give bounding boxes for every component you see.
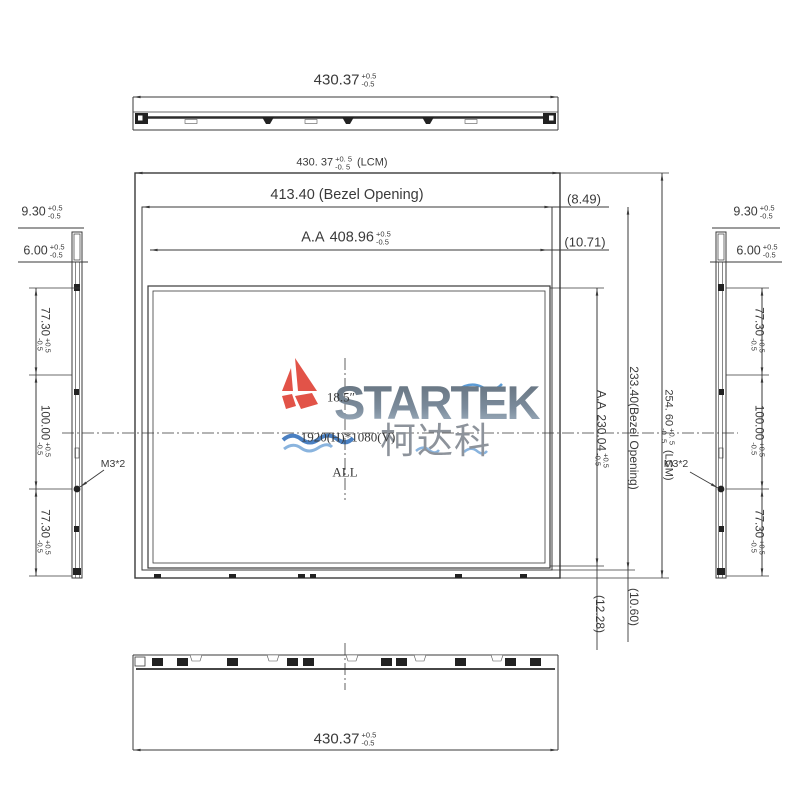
dim-left-thickness-panel: 6.00 +0.5-0.5 [23,244,64,259]
drawing-linework: STARTEK 柯达科 [0,0,800,800]
dim-bezel-height: 233.40(Bezel Opening) [628,366,640,489]
panel-resolution-label: 1920(H)*1080(V) [301,431,396,444]
panel-grade-label: ALL [332,466,357,479]
dim-right-seg-mid: 100.00 +0.5-0.5 [751,405,766,457]
dim-left-seg-mid: 100.00 +0.5-0.5 [37,405,52,457]
dim-right-seg-top: 77.30 +0.5-0.5 [751,307,766,353]
dim-aa-width: A.A 408.96 +0.5-0.5 [301,231,391,246]
dim-bezel-width: 413.40 (Bezel Opening) [270,188,423,203]
ref-dim-aa-right: (10.71) [564,236,605,249]
startek-wordmarks: STARTEK 柯达科 [334,376,541,462]
ref-dim-bezel-right: (8.49) [567,193,601,206]
dim-value: 430.37 [314,73,360,88]
note-right-screw: M3*2 [664,459,689,470]
top-profile-view [133,97,558,130]
dim-aa-height: A.A 230.04 +0.5-0.5 [595,390,610,468]
dim-right-thickness-panel: 6.00 +0.5-0.5 [736,244,777,259]
dim-top-view-width: 430.37 +0.5-0.5 [314,73,377,88]
ref-dim-bezel-bottom: (10.60) [628,588,640,626]
engineering-drawing-page: STARTEK 柯达科 430.37 +0.5-0.5 430. 37 +0. … [0,0,800,800]
dim-right-thickness-total: 9.30 +0.5-0.5 [733,205,774,220]
note-left-screw: M3*2 [101,459,126,470]
dim-right-seg-bottom: 77.30 +0.5-0.5 [751,509,766,555]
dim-left-seg-top: 77.30 +0.5-0.5 [37,307,52,353]
dim-left-thickness-total: 9.30 +0.5-0.5 [21,205,62,220]
left-side-profile [18,228,104,578]
dim-lcm-width: 430. 37 +0. 5-0. 5 (LCM) [296,156,387,171]
dim-left-seg-bottom: 77.30 +0.5-0.5 [37,509,52,555]
ref-dim-aa-bottom: (12.28) [594,595,606,633]
panel-size-label: 18.5″ [327,391,355,404]
dim-bottom-view-width: 430.37 +0.5-0.5 [314,732,377,747]
brand-wordmark-cn: 柯达科 [380,421,491,462]
right-side-profile [690,228,782,578]
